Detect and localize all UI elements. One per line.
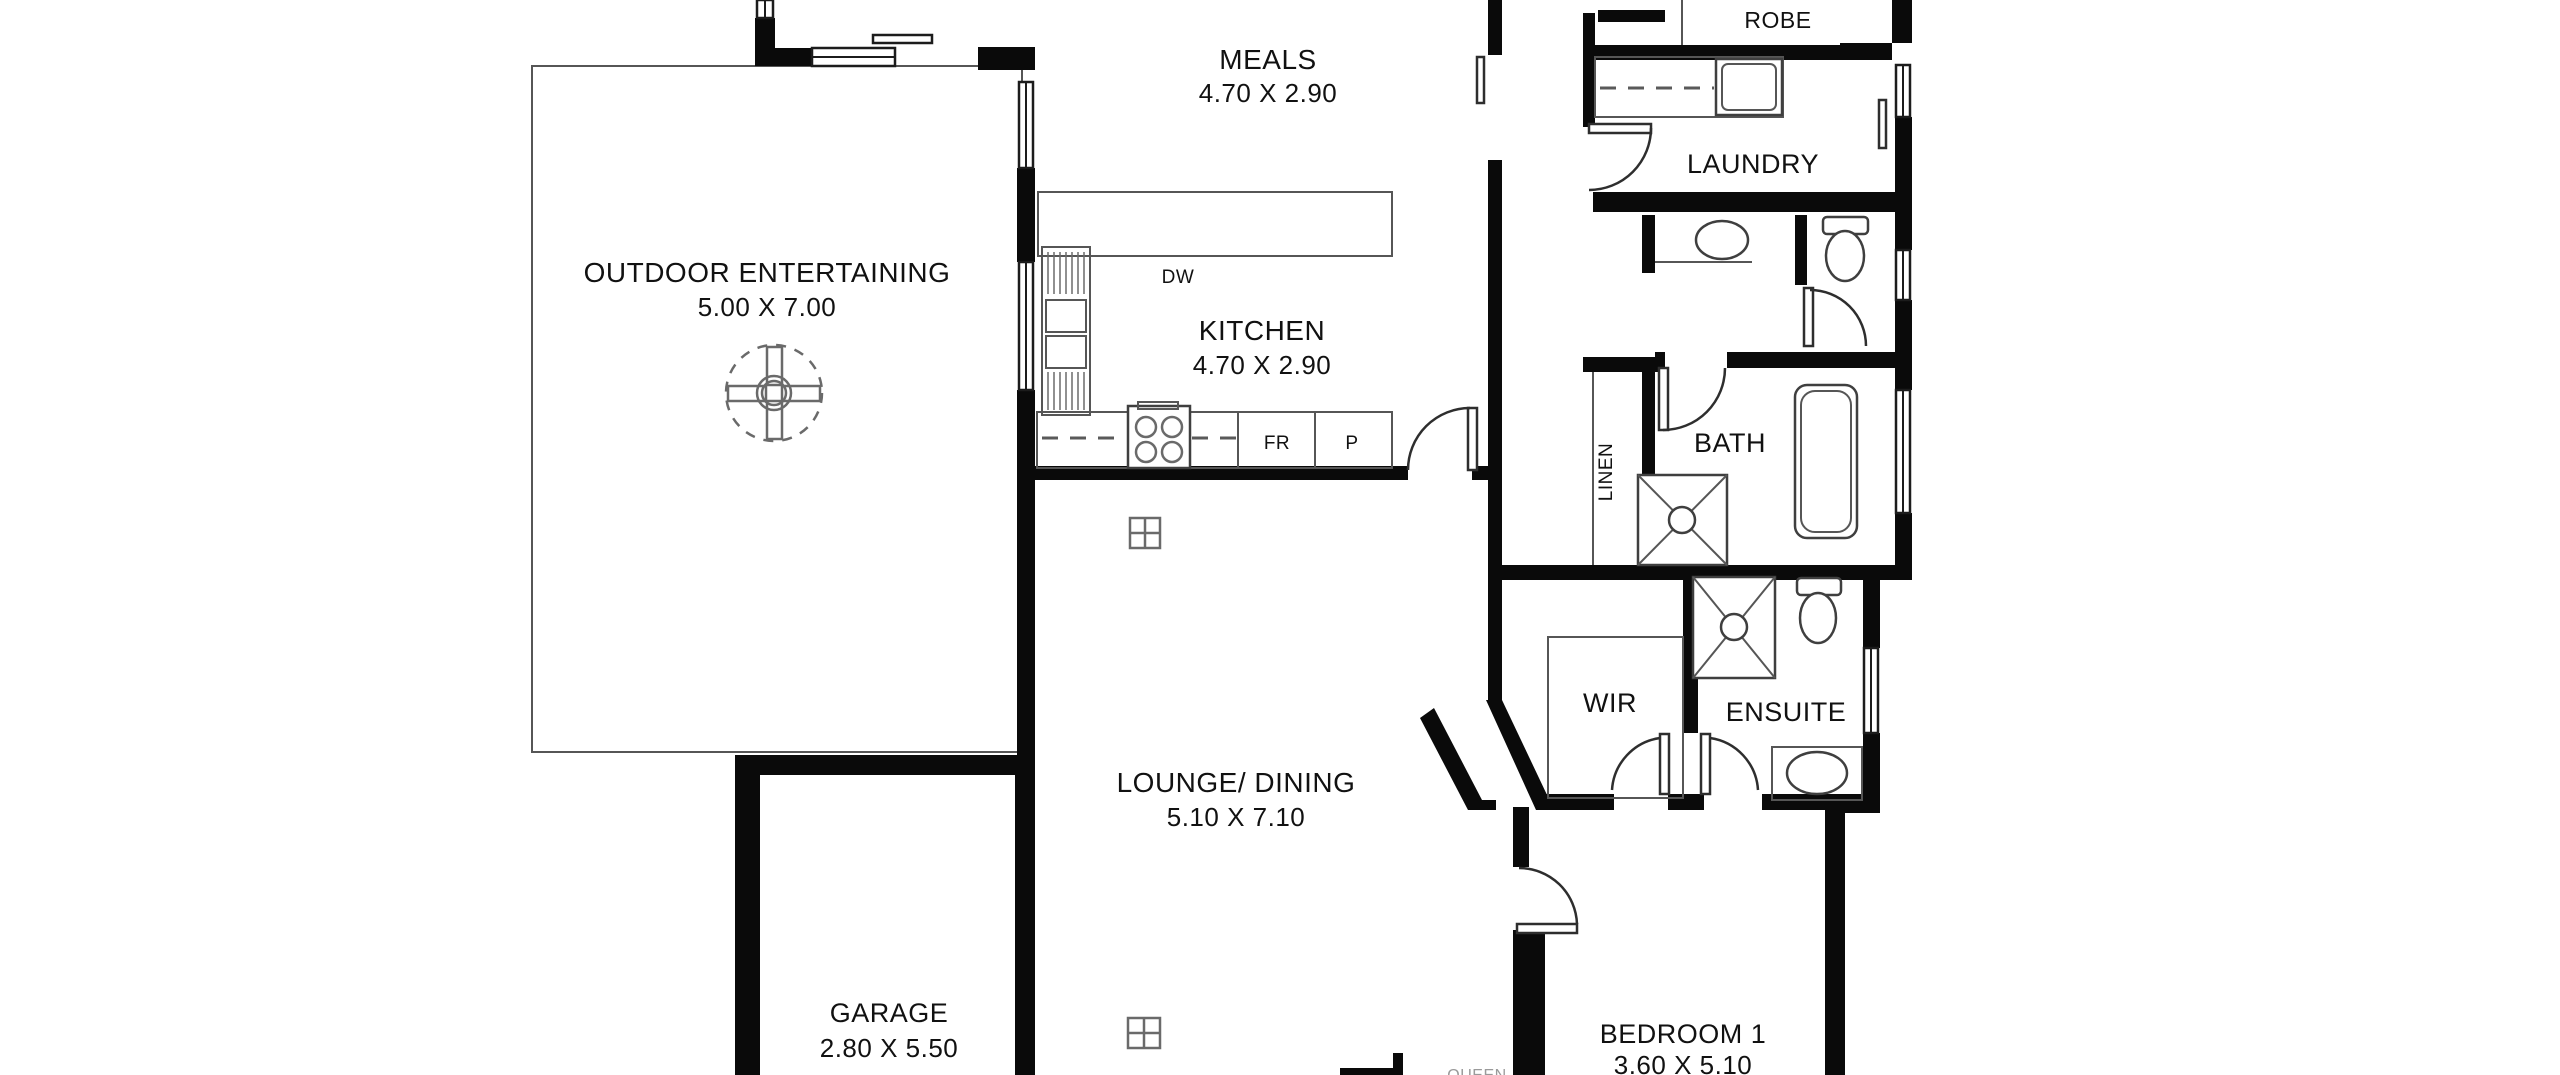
room-label-bedroom1: BEDROOM 1 bbox=[1600, 1019, 1767, 1049]
floor-waste-icon bbox=[1128, 1018, 1160, 1048]
room-label-laundry: LAUNDRY bbox=[1687, 149, 1819, 179]
window-top-icon bbox=[757, 0, 773, 18]
room-dims-kitchen: 4.70 X 2.90 bbox=[1193, 350, 1332, 380]
wc-toilet-icon bbox=[1823, 217, 1868, 281]
washing-machine-icon bbox=[1716, 59, 1782, 115]
bed-label-queen: QUEEN bbox=[1447, 1067, 1506, 1075]
room-label-bath: BATH bbox=[1694, 428, 1766, 458]
ensuite-shower-icon bbox=[1693, 577, 1775, 678]
room-dims-lounge-dining: 5.10 X 7.10 bbox=[1167, 802, 1306, 832]
window-ensuite-east-icon bbox=[1864, 648, 1878, 733]
bench-run-icon bbox=[1037, 412, 1392, 468]
floor-plan-canvas: OUTDOOR ENTERTAINING 5.00 X 7.00 MEALS 4… bbox=[0, 0, 2560, 1075]
door-wc-icon bbox=[1804, 288, 1866, 346]
window-meals-sliding-icon bbox=[812, 35, 932, 66]
room-dims-garage: 2.80 X 5.50 bbox=[820, 1033, 959, 1063]
window-wc-east-icon bbox=[1896, 250, 1910, 300]
room-label-garage: GARAGE bbox=[830, 998, 949, 1028]
fridge-label: FR bbox=[1264, 433, 1290, 454]
door-kitchen-icon bbox=[1408, 408, 1477, 470]
floor-waste-icon bbox=[1130, 518, 1160, 548]
room-dims-outdoor-entertaining: 5.00 X 7.00 bbox=[698, 292, 837, 322]
room-label-outdoor-entertaining: OUTDOOR ENTERTAINING bbox=[584, 257, 951, 288]
door-bedroom1-icon bbox=[1517, 868, 1577, 933]
door-bath-icon bbox=[1659, 368, 1725, 430]
window-laundry-east-icon bbox=[1896, 65, 1910, 117]
island-bench-icon bbox=[1038, 192, 1392, 256]
room-label-linen: LINEN bbox=[1596, 443, 1617, 501]
door-meals-laundry-leaf-icon bbox=[1477, 57, 1484, 103]
room-dims-bedroom1: 3.60 X 5.10 bbox=[1614, 1050, 1753, 1075]
room-dims-meals: 4.70 X 2.90 bbox=[1199, 78, 1338, 108]
outdoor-entertaining-area bbox=[532, 66, 1022, 752]
pantry-label: P bbox=[1345, 433, 1358, 454]
room-label-ensuite: ENSUITE bbox=[1726, 697, 1847, 727]
floor-plan: OUTDOOR ENTERTAINING 5.00 X 7.00 MEALS 4… bbox=[0, 0, 2560, 1075]
ensuite-toilet-icon bbox=[1797, 578, 1841, 643]
door-laundry-icon bbox=[1589, 124, 1651, 190]
room-label-robe: ROBE bbox=[1744, 7, 1811, 33]
room-label-wir: WIR bbox=[1583, 688, 1637, 718]
bathtub-icon bbox=[1795, 385, 1857, 538]
room-label-kitchen: KITCHEN bbox=[1199, 315, 1325, 346]
ensuite-fixtures bbox=[1693, 577, 1862, 800]
bath-shower-icon bbox=[1638, 475, 1727, 565]
room-label-lounge-dining: LOUNGE/ DINING bbox=[1117, 767, 1356, 798]
stove-icon bbox=[1128, 402, 1190, 468]
wc-fixtures bbox=[1655, 217, 1868, 281]
bath-fixtures bbox=[1593, 372, 1857, 565]
door-ensuite-icon bbox=[1701, 734, 1758, 794]
dishwasher-label: DW bbox=[1162, 267, 1195, 288]
door-laundry-external-leaf-icon bbox=[1879, 100, 1886, 148]
door-wir-icon bbox=[1612, 734, 1669, 794]
ensuite-vanity-icon bbox=[1772, 747, 1862, 800]
wc-basin-icon bbox=[1696, 221, 1748, 259]
tall-cabinet-icon bbox=[1042, 247, 1090, 415]
room-label-meals: MEALS bbox=[1219, 44, 1316, 75]
window-bath-east-icon bbox=[1896, 390, 1910, 513]
ceiling-fan-icon bbox=[726, 345, 822, 441]
